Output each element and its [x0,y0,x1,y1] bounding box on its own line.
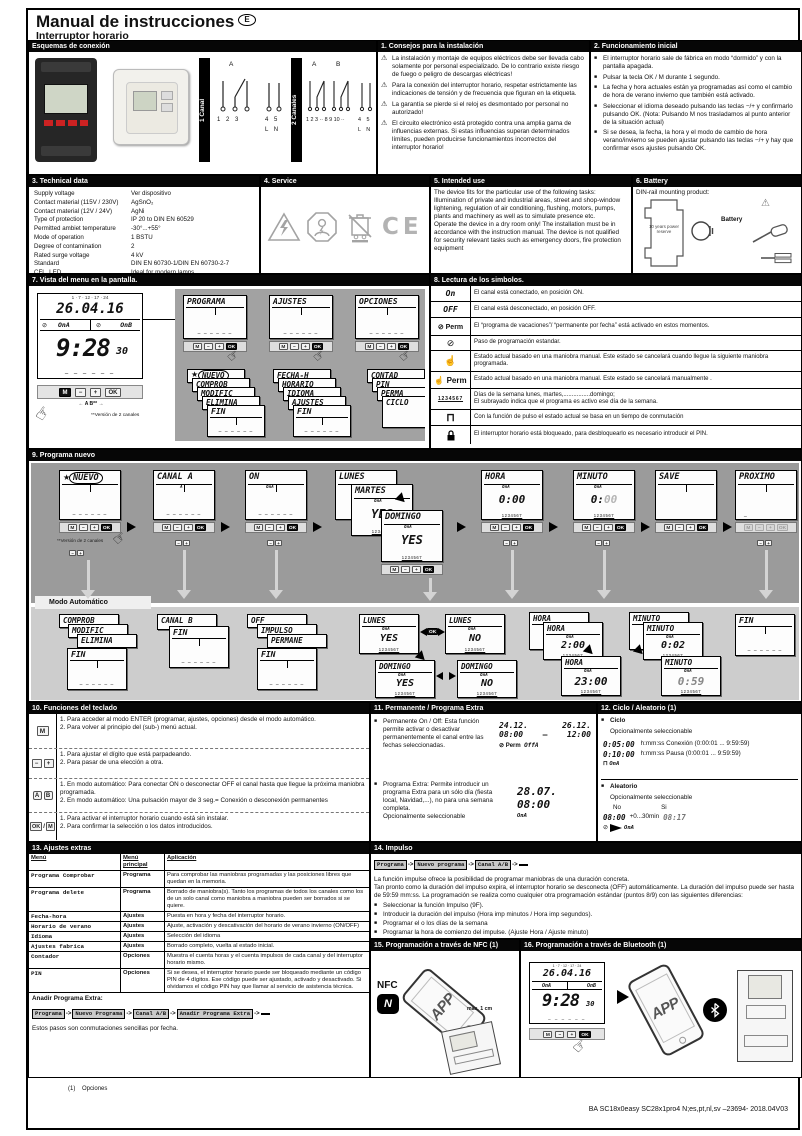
s13-header: 13. Ajustes extras [29,843,369,854]
bullet-icon: ■ [601,783,607,791]
m-key: M [46,822,55,831]
symbol-desc: El “programa de vacaciones”/ “permanente… [471,322,801,331]
channel-state: OnA [404,525,412,530]
s4-header: 4. Service [261,176,429,187]
section-14-impulso: 14. Impulso Programa->Nuevo programa->Ca… [370,842,802,939]
card-title: FIN [71,650,85,659]
minus-key: − [675,524,684,531]
card-title: LUNES [449,616,472,625]
minus-key: − [401,566,410,573]
minus-key: − [32,759,42,768]
screen-title: CANAL A [157,472,193,482]
ok-key: OK [777,524,788,531]
spec-label: Standard [34,260,131,269]
screen-minuto-3: MINUTOOnA0:591234567 [661,656,721,696]
key-desc: 1. Para acceder al modo ENTER (programar… [57,714,369,748]
card-title: CANAL B [161,616,193,625]
submenu-card: FIN– – – – – – [293,405,351,437]
two-channel-note: **Versión de 2 canales [91,413,161,418]
pulse-icon: ⊓ [603,761,608,767]
section-4-service: 4. Service CE [260,175,430,274]
submenu-item: FIN [297,407,311,416]
wall-timer-button [161,91,173,100]
symbol-row: OnEl canal está conectado, en posición O… [431,286,801,302]
crumb-nuevo: Nuevo Programa [72,1009,125,1019]
crumb-sep: -> [125,1011,133,1017]
channel-state: OffA [524,742,538,749]
s9-header: 9. Programa nuevo [29,450,801,461]
flow-right-arrow [723,522,732,532]
right-arrow [449,672,456,680]
pulse-symbol: ⊓ [431,410,471,425]
cable-lug-icon [759,252,793,264]
yes-value: YES [376,678,434,689]
card-title: HORA [547,624,565,633]
battery-intro: DIN-rail mounting product: [636,189,710,197]
crumb-sep: -> [467,862,475,868]
perm-icon: ⊘ [499,743,504,749]
warning-text: La instalación y montaje de equipos eléc… [392,55,586,79]
program-step-icon: ⊘ [96,322,101,329]
symbol-row: ⊓Con la función de pulso el estado actua… [431,410,801,426]
lcd-dashes: – – – – – – [170,660,228,666]
channel-state: OnA [502,485,510,490]
s8-header: 8. Lectura de los simbolos. [431,275,801,286]
minuto-value: 0:59 [662,675,720,688]
item-text: Permanente On / Off: Esta función permit… [383,718,488,750]
minus-key: − [79,524,88,531]
list-item: ■Ciclo [601,717,798,725]
plus-key: + [90,388,101,397]
weekday-ruler: 1234567 [360,647,418,652]
weekdays-symbol: 1234567 [431,389,471,409]
nfc-label: NFC [377,980,398,991]
submenu-item: FIN [211,407,225,416]
item-text: Si se desea, la fecha, la hora y el modo… [603,129,798,153]
spec-label: Type of protection [34,216,131,225]
page-title: Manual de instrucciones [36,12,234,31]
extra-date: 28.07. [517,785,557,798]
m-key: M [59,388,71,397]
channel-b-state: OnB [587,983,596,989]
weekday-ruler: 1234567 [482,513,542,518]
col-application: Aplicación [165,854,369,870]
si-label: Si [661,804,667,812]
left-arrow [420,628,427,636]
item-text: Introducir la duración del impulso (Hora… [383,911,592,919]
s14-header: 14. Impulso [371,843,801,854]
extra-display: 28.07. 08:00 OnA [517,785,557,819]
on-symbol: On [431,286,471,301]
stack-card: ELIMINA [77,634,137,648]
key-function-row: OK/M 1. Para activar el interruptor hora… [29,812,369,840]
symbol-desc: Estado actual basado en una maniobra man… [471,353,801,370]
key-function-row: AB 1. En modo automático: Para conectar … [29,778,369,812]
spec-label: Contact material (12V / 24V) [34,208,131,217]
symbol-row: ☝ PermEstado actual basado en una maniob… [431,372,801,389]
channel-a-state: OnA [542,983,551,989]
minus-key: − [265,524,274,531]
ciclo-label: Ciclo [610,717,625,725]
device-side-view-icon [641,198,687,270]
off-symbol: OFF [431,302,471,317]
timer-device [441,1021,501,1075]
paragraph: Tan pronto como la duración del impulso … [374,884,798,900]
crumb-sep: -> [407,862,415,868]
warning-text: La garantía se pierde si el reloj es des… [392,101,586,117]
weekday-ruler: 1234567 [382,555,442,560]
keypad: M−+OK [529,1028,605,1040]
opt-label: Opcionalmente seleccionable [601,794,798,802]
symbol-desc: Paso de programación estandar. [471,338,801,347]
crumb-nuevo: Nuevo programa [414,860,467,870]
screwdriver-icon [751,224,791,246]
two-channel-label: 2 Canales [291,58,302,162]
menu-panel: PROGRAMA– – – – – – AJUSTES– – – – – – O… [175,289,425,441]
terminal-block-bottom [41,146,91,156]
red-button [56,120,65,126]
program-step-symbol: ⊘ [431,336,471,350]
channel-state: OnA [684,669,692,674]
section-12-ciclo: 12. Ciclo / Aleatorio (1) ■Ciclo Opciona… [597,702,802,842]
section-13-ajustes-extras: 13. Ajustes extras Menú Menú principal A… [28,842,370,1078]
slash: / [43,824,45,830]
bullet-icon: ■ [374,929,380,937]
screen-canal-a: CANAL AA– – – – – – [153,470,215,520]
lcd-dashes: – – – – – – [258,682,316,688]
warning-text: Para la conexión del interruptor horario… [392,82,586,98]
table-row: IdiomaAjustesSelección del idioma [29,931,369,941]
screen-title: SAVE [659,472,679,482]
list-item: ■Pulsar la tecla OK / M durante 1 segund… [594,74,798,82]
card-title: FIN [173,628,187,637]
table-row: ContadorOpcionesMuestra el cuenta horas … [29,951,369,968]
m-key: M [37,726,49,736]
s1-body: ⚠La instalación y montaje de equipos elé… [381,55,586,156]
section-10-keys: 10. Funciones del teclado M 1. Para acce… [28,702,370,842]
channel-state: OnA [594,485,602,490]
ln-labels: L N [358,127,372,133]
symbol-row: ☝Estado actual basado en una maniobra ma… [431,351,801,372]
item-text: La fecha y hora actuales están ya progra… [603,84,798,100]
bullet-icon: ■ [374,902,380,910]
no-value: NO [446,633,504,644]
divider [90,320,91,330]
program-step-icon: ⊘ [42,322,47,329]
key-desc: 1. En modo automático: Para conectar ON … [57,779,369,812]
crumb-programa: Programa [32,1009,65,1019]
submenu-card: FIN– – – – – – [207,405,265,437]
item-text: Programa Extra: Permite introducir un pr… [383,781,496,821]
minus-key: − [376,343,385,350]
extra-time: 08:00 [517,798,557,811]
battery-cell-icon [689,218,715,244]
left-arrow [436,672,443,680]
app-label: APP [427,990,459,1023]
menu-screen-programa: PROGRAMA– – – – – – [183,295,247,339]
m-key: M [543,1031,552,1038]
table-row: Programa deleteProgramaBorrado de maniob… [29,887,369,911]
key-strip: M−+OK [381,564,443,575]
table-row: Ajustes fabricaAjustesBorrado completo, … [29,941,369,951]
item-text: Seleccionar la función Impulso (9F). [383,902,483,910]
spec-value: 4 kV [131,252,143,261]
symbol-desc: Estado actual basado en una maniobra man… [471,375,801,384]
flow-right-arrow [313,522,322,532]
menu-screen-opciones: OPCIONES– – – – – – [355,295,419,339]
s14-body: Programa->Nuevo programa->Canal A/B-> La… [374,856,798,939]
service-icons: CE [265,210,425,244]
m-key: M [68,524,77,531]
wiring-diagram-1ch: A 1 2 3 4 5 L N [215,61,287,161]
lcd-dashes: – – – – – – [294,429,350,435]
symbol-row: 1234567Días de la semana lunes, martes,.… [431,389,801,410]
minus-key: − [757,540,764,546]
ln-labels: L N [265,127,280,133]
plus-key: + [511,540,518,546]
section-7-menu-view: 7. Vista del menu en la pantalla. 1 · 7 … [28,274,430,449]
warning-item: ⚠La instalación y montaje de equipos elé… [381,55,586,79]
list-item: ■Si se desea, la fecha, la hora y el mod… [594,129,798,153]
time-from: 08:00 [499,730,523,739]
flow-down-arrow [423,578,437,601]
paragraph: The device fits for the particular use o… [434,189,628,221]
ok-key: OK [427,628,438,635]
spec-row: StandardDIN EN 60730-1/DIN EN 60730-2-7 [34,260,257,269]
power-numbers: 4 5 [358,117,372,123]
list-item: ■Programar el o los días de la semana [374,920,798,928]
channel-state: OnA [517,813,557,819]
screen-title: LUNES [339,472,365,482]
key-strip: M−+OK [245,522,307,533]
symbol-desc: El interruptor horario está bloqueado, p… [471,430,801,439]
stack-card: FIN– – – – – – [257,648,317,690]
device-display [748,975,782,999]
mini-keys: −+ [175,540,190,546]
wall-timer-button [161,103,173,112]
plus-key: + [567,1031,576,1038]
ok-key: OK [101,524,112,531]
lcd-day-dashes: – – – – – – [530,1017,604,1022]
footnote: (1) Opciones [68,1086,107,1092]
list-item: ■Seleccionar el idioma deseado pulsando … [594,103,798,127]
card-title: FIN [261,650,275,659]
ok-key: OK [615,524,626,531]
aleatorio-block: ■Aleatorio Opcionalmente seleccionable N… [601,783,798,832]
section-3-technical: 3. Technical data Supply voltageVer disp… [28,175,260,274]
no-label: No [613,804,621,812]
s2-header: 2. Funcionamiento inicial [591,41,801,52]
crumb-blank [519,864,528,866]
ok-key: OK [195,524,206,531]
random-offset: +0...30min [630,813,660,821]
table-row: Horario de veranoAjustesAjuste, activaci… [29,921,369,931]
s12-header: 12. Ciclo / Aleatorio (1) [598,703,801,714]
key-strip: M−+OK [355,341,419,352]
mini-keys: −+ [595,540,610,546]
hour-ruler: 1 · 7 · 12 · 17 · 24 [38,295,142,300]
minus-key: − [755,524,764,531]
table-row: Programa ComprobarProgramaPara comprobar… [29,870,369,887]
plus-key: + [512,524,521,531]
b-key: B [44,791,53,800]
screen-lunes-yes: LUNESOnAYES1234567 [359,614,419,654]
item-text: Programar el o los días de la semana [383,920,488,928]
lock-icon [431,426,471,444]
mini-keys: −+ [69,550,84,556]
item-text: El interruptor horario sale de fábrica e… [603,55,798,71]
key-desc: 1. Para activar el interruptor horario c… [57,813,369,840]
key-strip: M−+OK [735,522,797,533]
channel-state: OnA [468,627,476,632]
col-menu: Menú [29,854,121,870]
spec-row: Supply voltageVer dispositivo [34,190,257,199]
arrow-icon [610,824,622,832]
flow-down-arrow [177,550,191,599]
screen-fin: FIN– – – – – – [735,614,795,656]
flow-down-arrow [759,550,773,599]
crumb-sep: -> [169,1011,177,1017]
one-channel-label: 1 Canal [199,58,210,162]
spec-value: AgNi [131,208,144,217]
spec-value: -30°...+55° [131,225,161,234]
screen-title: MINUTO [577,472,608,482]
mini-keys: −+ [267,540,282,546]
s7-header: 7. Vista del menu en la pantalla. [29,275,429,286]
s15-header: 15. Programación a través de NFC (1) [371,940,519,951]
lcd-dashes: – – – – – – [154,512,214,518]
wiring-header: Esquemas de conexión [29,41,376,52]
paragraph: La función impulse ofrece la posibilidad… [374,876,798,884]
crumb-extra: Anadir Programa Extra [177,1009,254,1019]
paragraph: Operate the device in a dry room only! T… [434,221,628,253]
ciclo-pause-desc: h:mm:ss Pausa (0:00:01 ... 9:59:59) [641,750,741,759]
time-after: 08:17 [663,813,686,822]
stack-card: FIN– – – – – – [169,626,229,668]
list-item: ■Introducir la duración del impulso (Hor… [374,911,798,919]
card-title: PERMANE [271,636,303,645]
item-text: Programar la hora de comienzo del impuls… [383,929,588,937]
warning-icon: ⚠ [381,101,389,117]
key-cell: OK/M [29,813,57,840]
lcd-dashes: – – – – – – [208,429,264,435]
divider [567,982,568,989]
list-item: ■Seleccionar la función Impulso (9F). [374,902,798,910]
minus-key: − [593,524,602,531]
document-reference: BA SC18x0easy SC28x1pro4 N;es,pt,nl,sv –… [589,1106,788,1113]
card-title: HORA [565,658,583,667]
crumb-sep: -> [253,1011,261,1017]
minus-key: − [267,540,274,546]
bullet-icon: ■ [374,718,380,750]
weee-bin-icon [343,210,377,244]
channel-state: OnA [374,499,382,504]
symbol-row: OFFEl canal está desconectado, en posici… [431,302,801,318]
device-terminals [453,1049,494,1065]
flow-down-arrow [269,550,283,599]
terminal-block-top [41,62,91,72]
screen-proximo: PROXIMO_ [735,470,797,520]
bullet-icon: ■ [594,55,600,71]
weekday-ruler: 1234567 [574,513,634,518]
plus-key: + [604,524,613,531]
screen-title: OPCIONES [359,297,398,306]
flow-right-arrow [127,522,136,532]
hora-value: 0:00 [482,493,542,506]
right-arrow [438,628,445,636]
lcd-channel-row: ⊘ OnA ⊘ OnB [40,319,140,331]
section-5-intended-use: 5. Intended use The device fits for the … [430,175,632,274]
flow-down-arrow [505,550,519,599]
weekday-ruler: 1234567 [376,691,434,696]
ok-key: OK [30,822,42,831]
s2-body: ■El interruptor horario sale de fábrica … [594,55,798,156]
plus-key: + [412,566,421,573]
weekday-ruler: 1234567 [662,689,720,694]
lcd-dashes: – – – – – – [60,512,120,518]
plus-key: + [387,343,396,350]
item-text: Pulsar la tecla OK / M durante 1 segundo… [603,74,720,82]
lcd-time: 9:28 [542,991,579,1011]
ok-key: OK [423,566,434,573]
flow-right-arrow [549,522,558,532]
m-key: M [365,343,374,350]
plus-key: + [77,550,84,556]
warning-icon: ⚠ [381,120,389,152]
power-numbers: 4 5 [265,117,279,123]
s1-header: 1. Consejos para la instalación [378,41,589,52]
key-strip: M−+OK [573,522,635,533]
extra-text-block: ■Programa Extra: Permite introducir un p… [374,781,496,824]
app-label: APP [648,994,682,1023]
screen-title: AJUSTES [273,297,307,306]
weekday-ruler: 1234567 [446,647,504,652]
menu-screen-ajustes: AJUSTES– – – – – – [269,295,333,339]
plus-key: + [301,343,310,350]
spec-label: Permitted ambiet temperature [34,225,131,234]
wiring-diagram-2ch: A B 1 2 3 ·· 8 9 10 ·· 4 5 L N [306,61,376,161]
flow-right-arrow [641,522,650,532]
screen-domingo: DOMINGOOnAYES1234567 [381,510,443,562]
warning-item: ⚠El circuito electrónico está protegido … [381,120,586,152]
channel-label: A [180,485,183,490]
wall-timer-photo [113,69,189,145]
terminal-numbers: 1 2 3 [217,117,240,123]
divider [601,779,798,780]
key-strip: M−+OK [269,341,333,352]
plus-key: + [766,524,775,531]
flow-down-arrow [81,560,95,599]
m-key: M [254,524,263,531]
key-strip: M−+OK [153,522,215,533]
table-row: Fecha-horaAjustesPuesta en hora y fecha … [29,911,369,921]
screen-on: ONOnA– – – – – – [245,470,307,520]
screen-minuto: MINUTOOnA0:001234567 [573,470,635,520]
s11-header: 11. Permanente / Programa Extra [371,703,596,714]
plus-key: + [603,540,610,546]
list-item: ■El interruptor horario sale de fábrica … [594,55,798,71]
spec-value: AgSnO₂ [131,199,153,208]
lcd-dashes: – – – – – – [184,331,246,337]
channel-state: OnA [609,761,619,767]
plus-key: + [276,524,285,531]
minus-key: − [173,524,182,531]
m-key: M [582,524,591,531]
section-6-battery: 6. Battery DIN-rail mounting product: 10… [632,175,802,274]
minus-key: − [503,540,510,546]
minus-key: − [555,1031,564,1038]
screen-save: SAVE [655,470,717,520]
